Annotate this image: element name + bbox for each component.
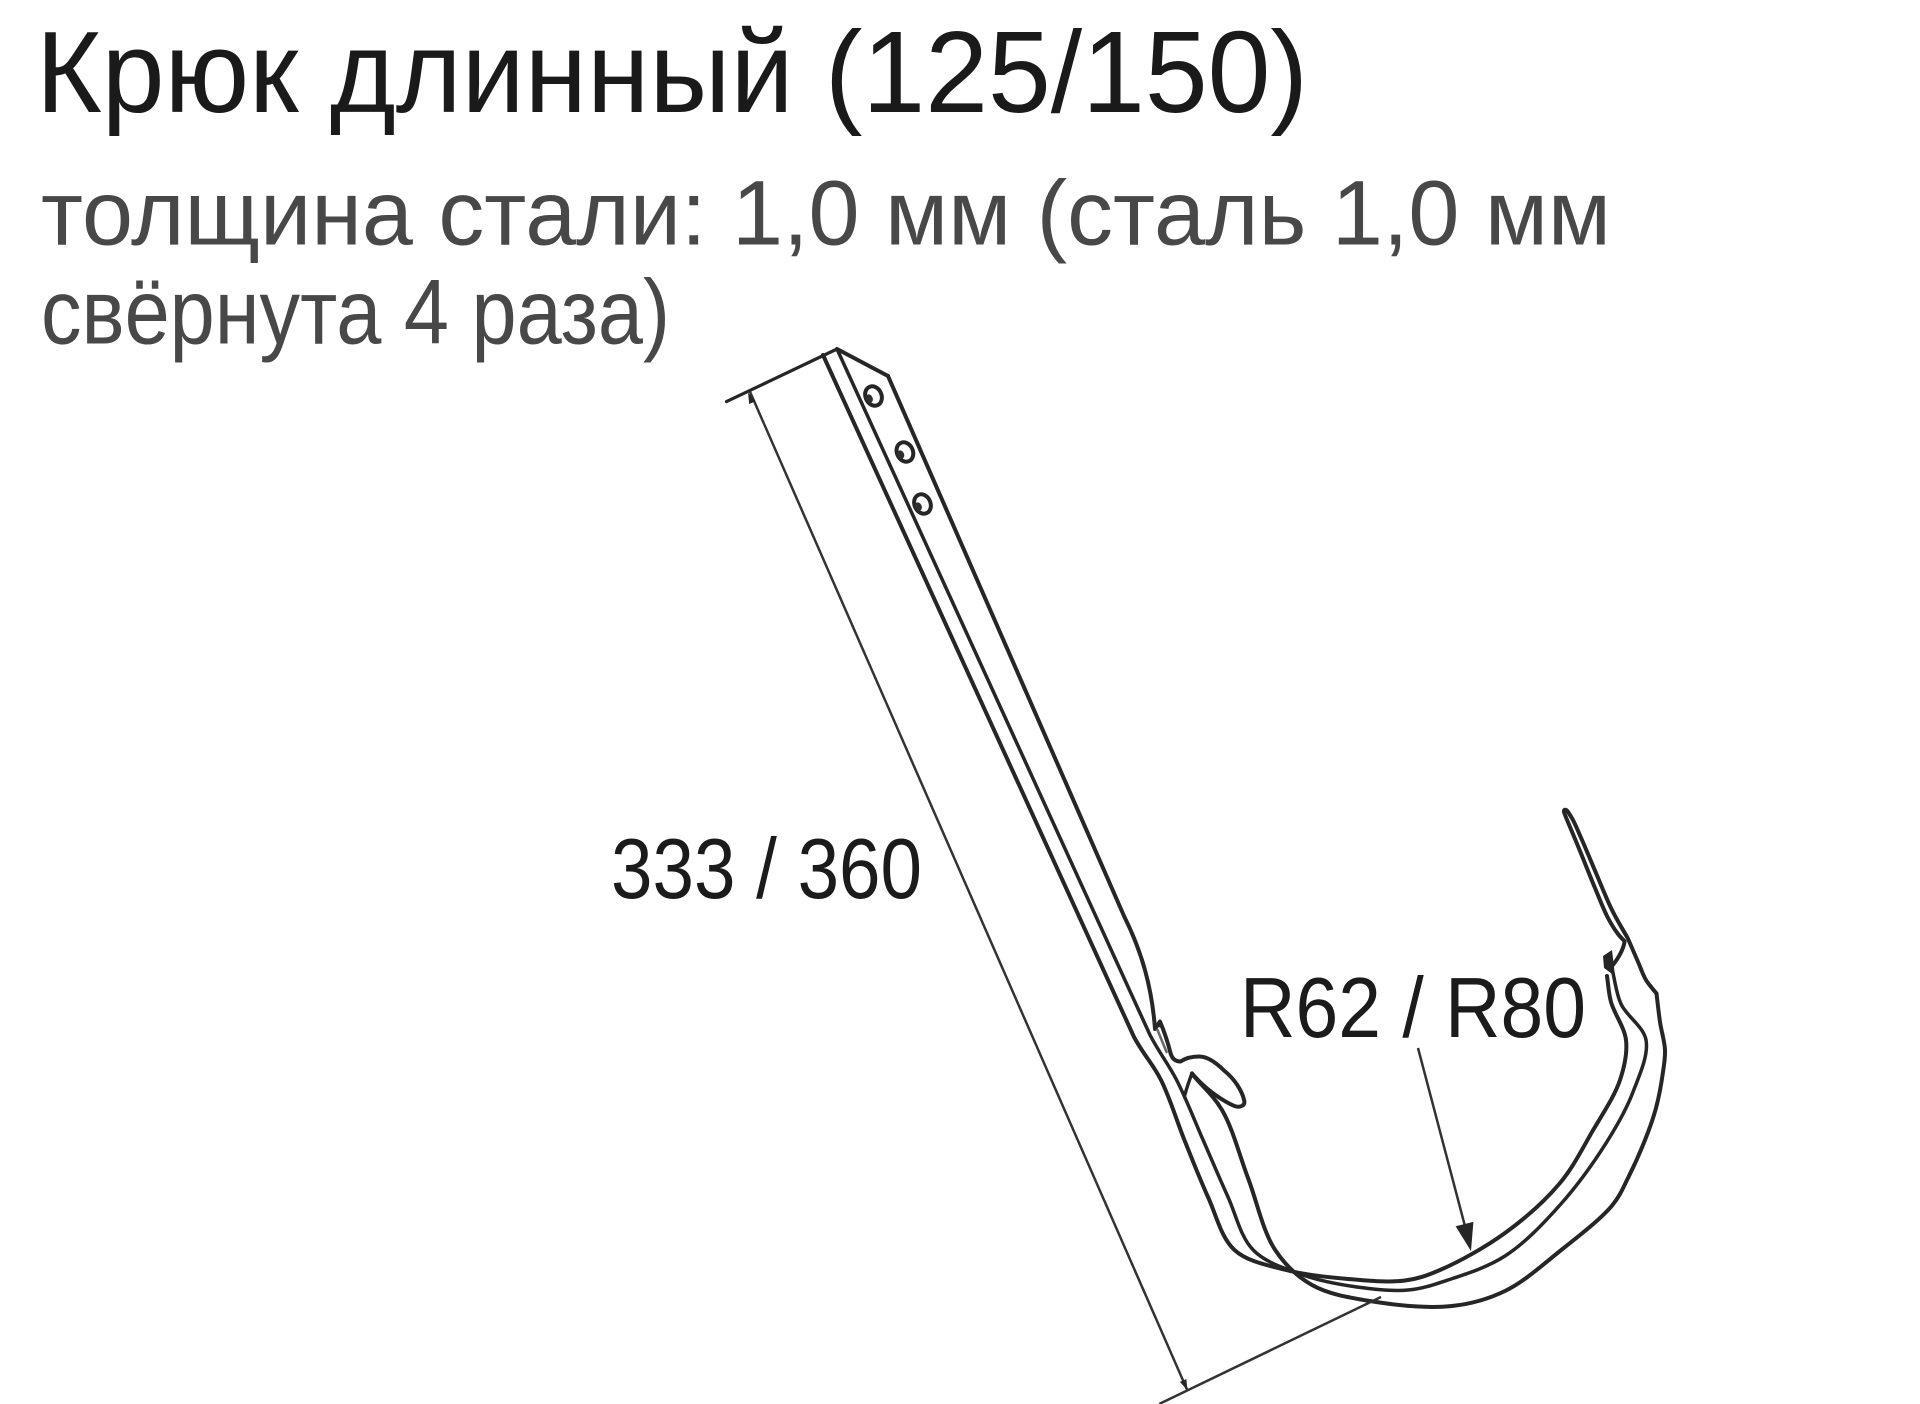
svg-text:толщина стали: 1,0 мм (сталь 1: толщина стали: 1,0 мм (сталь 1,0 мм	[41, 163, 1611, 265]
svg-text:333 / 360: 333 / 360	[611, 822, 922, 917]
svg-text:Крюк длинный (125/150): Крюк длинный (125/150)	[36, 7, 1308, 137]
svg-text:R62 / R80: R62 / R80	[1240, 961, 1586, 1056]
svg-text:свёрнута 4 раза): свёрнута 4 раза)	[41, 262, 670, 364]
